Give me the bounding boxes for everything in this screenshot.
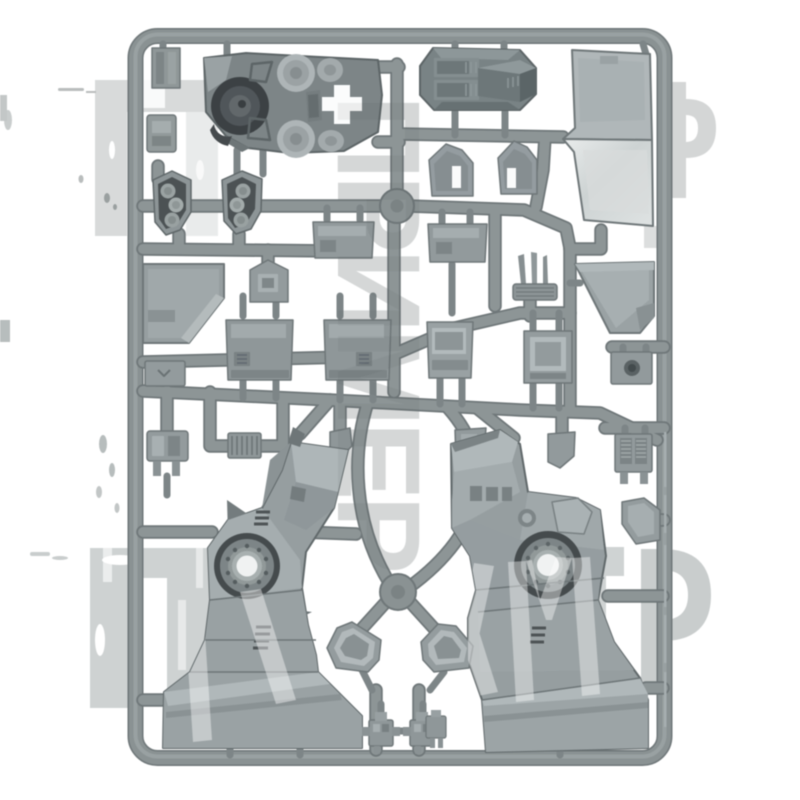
svg-text:ПРИМЕР: ПРИМЕР bbox=[312, 95, 444, 570]
